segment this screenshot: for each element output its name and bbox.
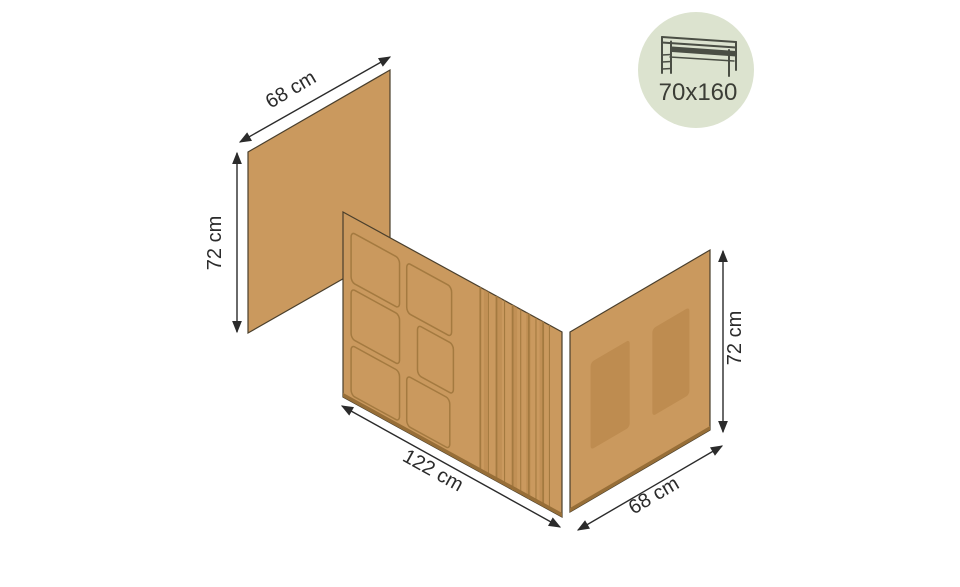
dim-label-right-panel-height: 72 cm (724, 311, 746, 365)
dim-label-left-panel-height: 72 cm (204, 216, 226, 270)
dim-label-right-panel-width: 68 cm (625, 473, 683, 520)
pleat-shade (484, 289, 488, 476)
right-fabric-panel (570, 250, 710, 512)
diagram-canvas: 68 cm 72 cm 122 cm 68 cm 72 cm 70x160 (0, 0, 960, 587)
dimension-diagram: 68 cm 72 cm 122 cm 68 cm 72 cm 70x160 (0, 0, 960, 587)
size-badge-label: 70x160 (659, 79, 738, 106)
pleat-shade (497, 297, 501, 484)
dim-label-left-panel-width: 68 cm (262, 67, 320, 114)
size-badge: 70x160 (638, 12, 754, 128)
